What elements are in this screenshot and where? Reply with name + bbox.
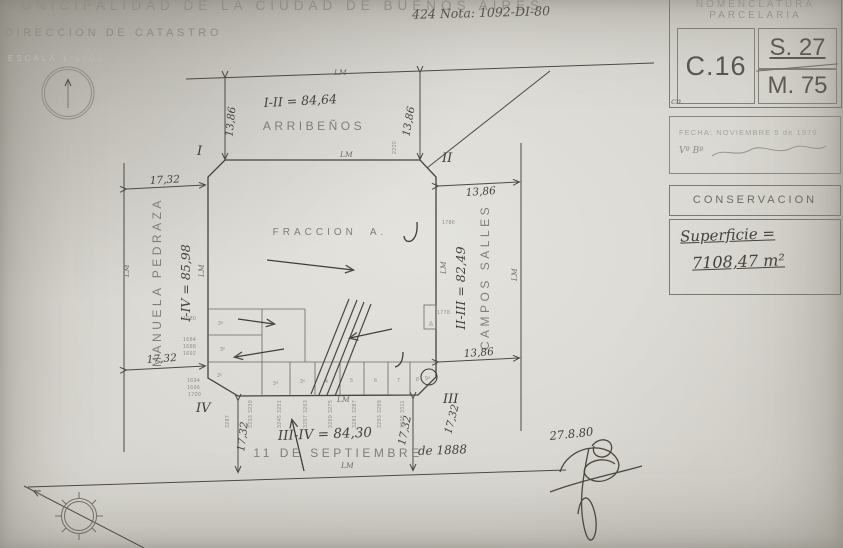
check-mark-2 [395,352,403,367]
house-numbers: 3233 3239 3245 3251 3257 3263 3269 3275 … [248,400,406,428]
small-number-left: 3287 [225,415,231,428]
svg-text:3293 3299: 3293 3299 [377,400,383,428]
svg-text:3305 3311: 3305 3311 [400,400,406,428]
width-salles-top: 13,86 [465,185,496,199]
width-pedraza-bottom: 17,32 [146,352,177,366]
check-mark-1 [404,222,417,241]
parcel-grid [208,305,436,396]
svg-text:3269 3275: 3269 3275 [328,400,334,428]
lm-bottom-block: LM [336,395,350,404]
svg-text:7: 7 [397,378,400,384]
width-salles-bottom: 13,86 [463,346,494,360]
width-pedraza-top: 17,32 [150,173,181,187]
lot-numbers-left: 1680 1684 1688 1692 1694 1696 1700 [183,316,201,398]
svg-text:3ᵉ: 3ᵉ [300,379,306,385]
svg-text:1786: 1786 [442,220,455,226]
svg-text:1684: 1684 [183,337,196,343]
svg-text:4: 4 [325,379,328,385]
svg-text:6: 6 [374,378,377,384]
street-campos-salles: CAMPOS SALLES [478,204,492,350]
svg-text:3245 3251: 3245 3251 [277,400,283,428]
width-arribenos-right: 13,86 [401,105,418,137]
corner-iv: IV [195,401,212,416]
svg-text:3257 3263: 3257 3263 [303,400,309,428]
signature-scribble [550,440,642,540]
width-septiembre-right-2: 17,32 [442,403,461,435]
svg-text:3ᶜ: 3ᶜ [217,373,223,379]
svg-text:1680: 1680 [183,316,196,322]
svg-text:1692: 1692 [183,351,196,357]
svg-text:3ᵈ: 3ᵈ [273,381,279,387]
lm-left-outer: LM [122,264,131,278]
measure-top: I-II = 84,64 [262,91,337,110]
svg-text:3ᵇ: 3ᵇ [220,347,226,353]
svg-text:5: 5 [350,378,353,384]
svg-text:3ᵃ: 3ᵃ [218,321,224,327]
svg-text:3281 3287: 3281 3287 [352,400,358,428]
width-arribenos-left: 13,86 [223,106,238,137]
svg-text:1700: 1700 [188,392,201,398]
svg-text:1694: 1694 [187,378,200,384]
corner-i: I [196,144,203,159]
street-arribenos: ARRIBEÑOS [263,119,365,133]
lm-top-outer: LM [333,68,347,77]
corner-iii: III [442,392,459,407]
svg-text:9ᵇ: 9ᵇ [429,321,435,326]
svg-text:3233 3239: 3233 3239 [248,400,254,428]
lm-bottom-outer: LM [340,461,354,470]
svg-text:1778: 1778 [437,310,450,316]
street-year-note: de 1888 [418,442,468,458]
cadastral-drawing: ARRIBEÑOS MANUELA PEDRAZA CAMPOS SALLES … [0,0,843,548]
measure-right: II-III = 82,49 [453,246,468,330]
corner-ii: II [441,151,453,166]
svg-text:1688: 1688 [183,344,196,350]
small-number-top: 2220 [392,141,398,154]
fraccion-label: FRACCION A. [273,227,388,238]
north-arrow-icon [42,67,94,119]
measure-bottom: III-IV = 84,30 [277,425,373,444]
survey-station-icon [34,491,103,540]
hatch-marks [311,299,371,396]
dimension-lines [24,63,654,548]
svg-text:1696: 1696 [187,385,200,391]
date-annotation: 27.8.80 [548,424,594,443]
svg-text:9ᵃ: 9ᵃ [425,376,431,382]
lm-left-block: LM [197,264,206,278]
cadastral-sheet: MUNICIPALIDAD DE LA CIUDAD DE BUENOS AIR… [0,0,843,548]
street-manuela-pedraza: MANUELA PEDRAZA [150,197,164,367]
measure-left: I-IV = 85,98 [178,244,193,322]
lm-right-outer: LM [510,268,519,282]
lm-top-block: LM [339,150,353,159]
svg-text:8: 8 [416,377,419,383]
street-11-de-septiembre: 11 DE SEPTIEMBRE [253,446,422,460]
lm-right-block: LM [439,261,448,275]
